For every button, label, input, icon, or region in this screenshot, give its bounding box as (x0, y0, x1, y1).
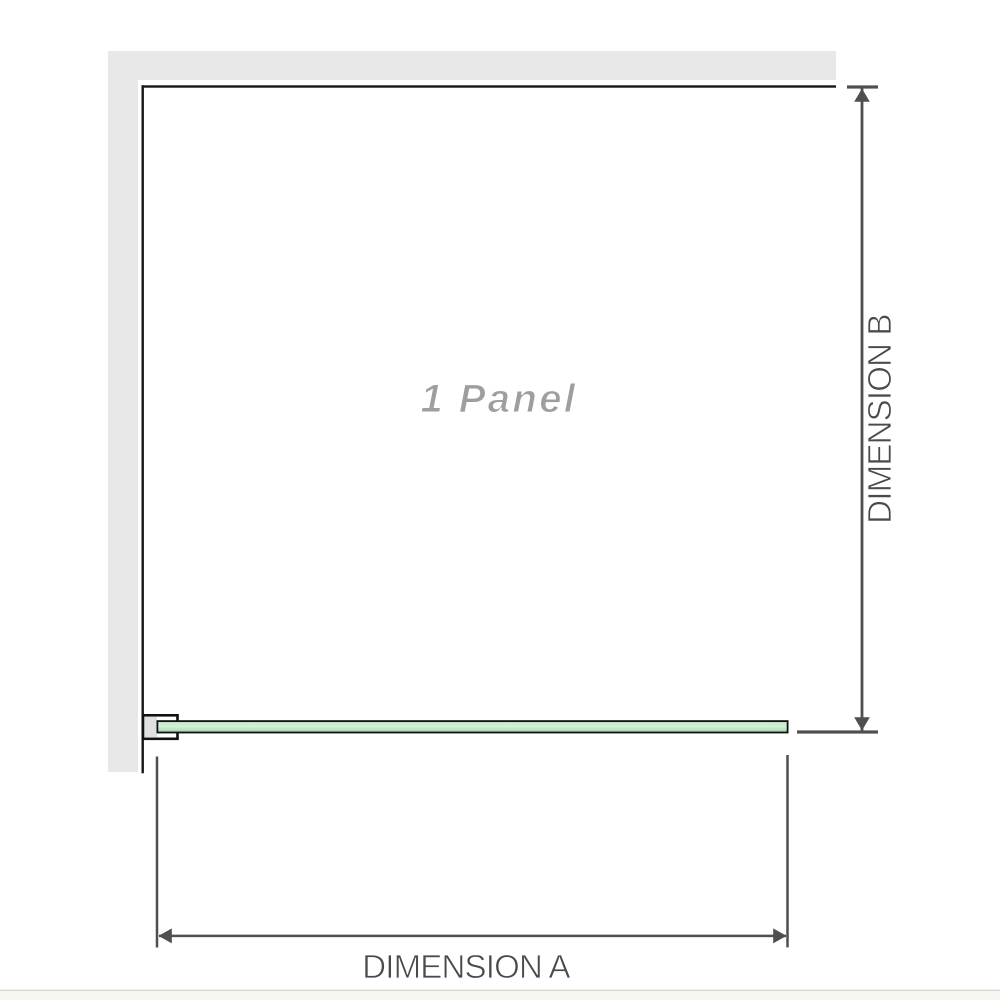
svg-text:DIMENSION A: DIMENSION A (362, 948, 570, 985)
svg-text:DIMENSION B: DIMENSION B (861, 314, 898, 523)
svg-text:1 Panel: 1 Panel (421, 377, 578, 421)
